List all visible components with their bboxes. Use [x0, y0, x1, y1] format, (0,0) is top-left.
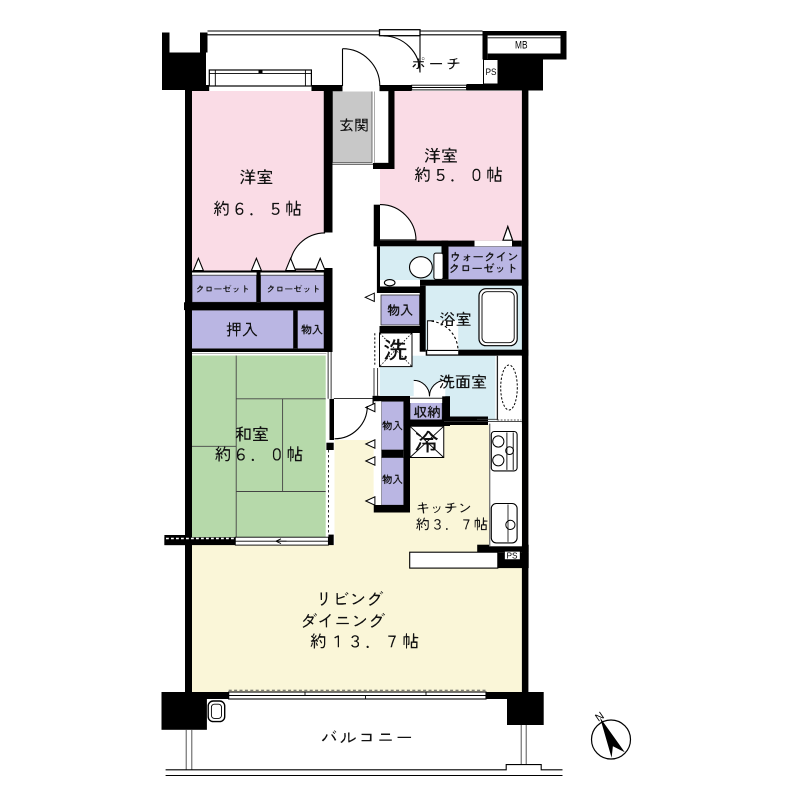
svg-text:MB: MB: [515, 40, 528, 52]
svg-text:PS: PS: [507, 551, 518, 561]
svg-text:N: N: [593, 710, 606, 724]
svg-text:PS: PS: [486, 67, 497, 78]
